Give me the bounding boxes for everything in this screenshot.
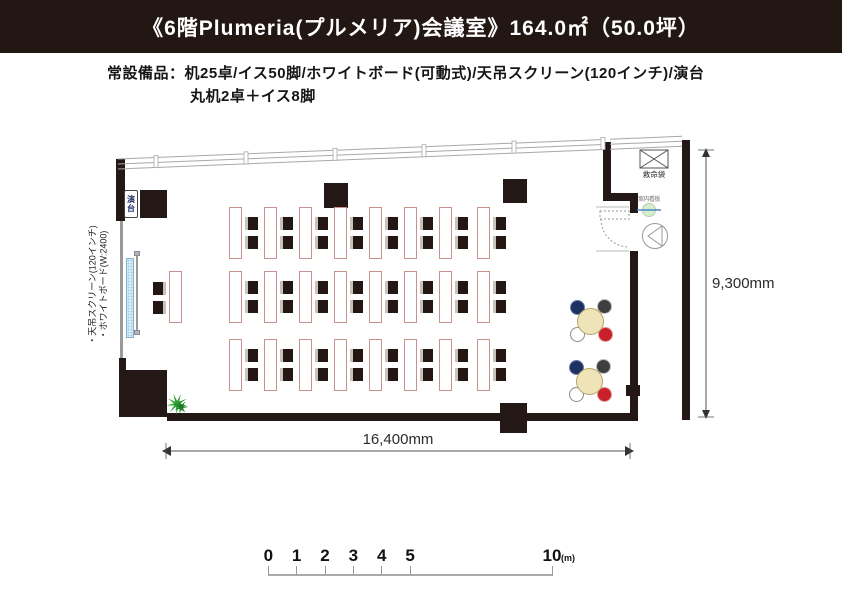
rect-table: [404, 339, 417, 391]
rect-table: [369, 207, 382, 259]
rect-table: [264, 271, 277, 323]
rect-table: [264, 207, 277, 259]
chair: [385, 368, 398, 381]
chair: [245, 217, 258, 230]
scale-tick: [381, 566, 382, 575]
chair: [493, 217, 506, 230]
chair: [493, 281, 506, 294]
rect-table: [299, 339, 312, 391]
chair: [280, 368, 293, 381]
chair: [420, 368, 433, 381]
rect-table: [404, 271, 417, 323]
chair: [455, 349, 468, 362]
round-table: [576, 368, 603, 395]
scale-tick: [325, 566, 326, 575]
rect-table: [439, 207, 452, 259]
rect-table: [229, 207, 242, 259]
chair: [493, 236, 506, 249]
window-post: [512, 141, 516, 153]
chair: [385, 349, 398, 362]
rect-table: [334, 271, 347, 323]
floor-plan-sheet: 《6階Plumeria(プルメリア)会議室》164.0㎡（50.0坪） 常設備品…: [0, 0, 842, 595]
scale-tick-label: 3: [341, 546, 365, 564]
window-post: [244, 152, 248, 164]
chair: [420, 281, 433, 294]
chair: [420, 349, 433, 362]
info-board-icon: [637, 204, 661, 217]
rect-table: [229, 339, 242, 391]
chair: [385, 236, 398, 249]
chair: [455, 368, 468, 381]
rect-table: [169, 271, 182, 323]
scale-tick: [268, 566, 269, 575]
chair: [315, 217, 328, 230]
plan-linework-layer: [0, 0, 842, 595]
chair: [455, 281, 468, 294]
scale-tick-label: 5: [398, 546, 422, 564]
chair: [350, 236, 363, 249]
scale-tick: [410, 566, 411, 575]
window-wall: [118, 136, 682, 169]
plant-icon: [166, 394, 188, 415]
chair: [455, 217, 468, 230]
chair: [493, 349, 506, 362]
rect-table: [477, 339, 490, 391]
rect-table: [477, 207, 490, 259]
rect-table: [477, 271, 490, 323]
rescue-bag-label: 救命袋: [636, 169, 672, 180]
scale-tick-label: 4: [370, 546, 394, 564]
rect-table: [299, 271, 312, 323]
chair: [385, 217, 398, 230]
scale-tick: [552, 566, 553, 575]
window-post: [601, 137, 605, 149]
chair: [455, 300, 468, 313]
rect-table: [264, 339, 277, 391]
chair: [493, 300, 506, 313]
rect-table: [439, 271, 452, 323]
chair: [280, 236, 293, 249]
chair: [315, 368, 328, 381]
rescue-bag-icon: [640, 150, 668, 168]
round-table: [577, 308, 604, 335]
chair: [350, 349, 363, 362]
chair: [420, 217, 433, 230]
chair: [280, 217, 293, 230]
scale-tick: [296, 566, 297, 575]
window-post: [333, 148, 337, 160]
chair: [385, 281, 398, 294]
chair: [153, 282, 166, 295]
chair: [350, 217, 363, 230]
chair: [280, 349, 293, 362]
dimension-height-label: 9,300mm: [712, 275, 775, 292]
chair: [315, 349, 328, 362]
rect-table: [229, 271, 242, 323]
whiteboard-note: ・ホワイトボード(W:2400): [97, 231, 110, 340]
chair: [420, 236, 433, 249]
chair: [153, 301, 166, 314]
chair: [245, 368, 258, 381]
chair: [245, 281, 258, 294]
chair: [315, 236, 328, 249]
scale-tick-label: 10: [540, 546, 564, 564]
chair: [245, 236, 258, 249]
rect-table: [439, 339, 452, 391]
scale-tick-label: 1: [285, 546, 309, 564]
chair: [245, 349, 258, 362]
entrance-door: [596, 207, 629, 251]
chair: [420, 300, 433, 313]
rect-table: [334, 207, 347, 259]
chair: [315, 300, 328, 313]
dimension-width-label: 16,400mm: [350, 431, 446, 448]
lobby-chair-icon: [643, 224, 668, 249]
chair: [350, 368, 363, 381]
rect-table: [369, 339, 382, 391]
scale-tick: [353, 566, 354, 575]
rect-table: [334, 339, 347, 391]
rect-table: [299, 207, 312, 259]
chair: [455, 236, 468, 249]
rect-table: [369, 271, 382, 323]
info-board-label: 案内看板: [626, 194, 672, 203]
chair: [280, 281, 293, 294]
window-post: [422, 145, 426, 157]
chair: [350, 281, 363, 294]
window-post: [154, 155, 158, 167]
chair: [280, 300, 293, 313]
chair: [350, 300, 363, 313]
chair: [493, 368, 506, 381]
scale-tick-label: 0: [256, 546, 280, 564]
scale-tick-label: 2: [313, 546, 337, 564]
chair: [245, 300, 258, 313]
chair: [385, 300, 398, 313]
chair: [315, 281, 328, 294]
rect-table: [404, 207, 417, 259]
